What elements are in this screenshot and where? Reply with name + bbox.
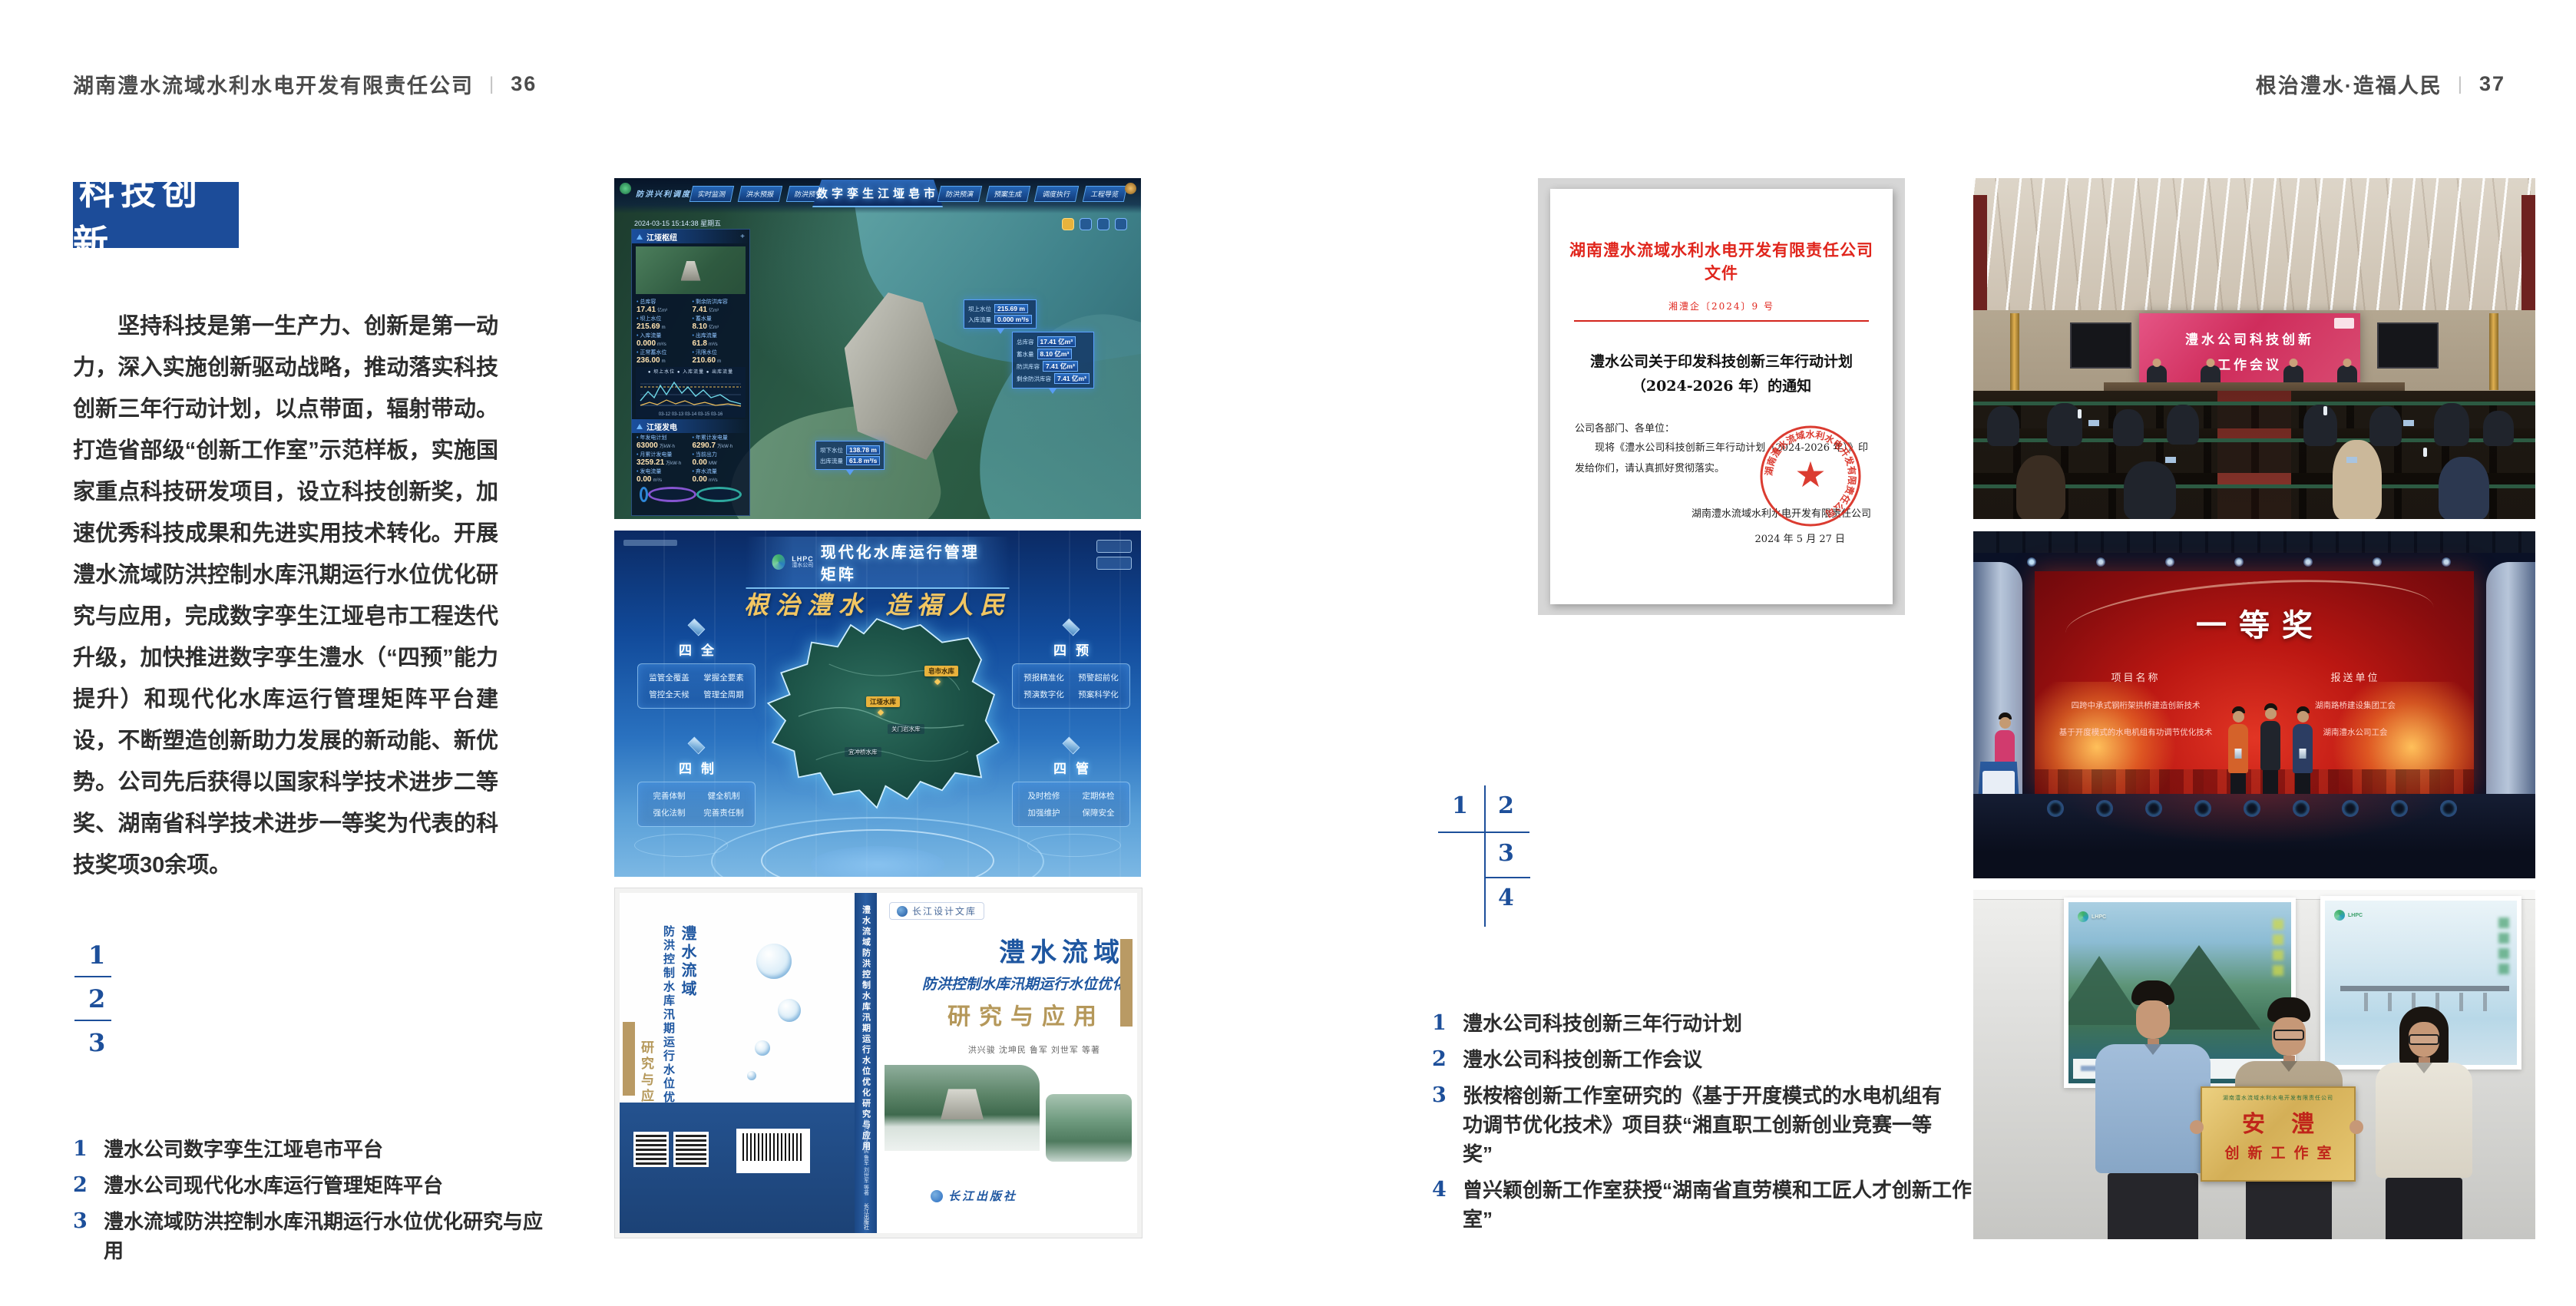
caption-text: 澧水公司科技创新三年行动计划: [1463, 1009, 1742, 1038]
chart-legend: ● 坝上水位 ● 入库流量 ● 出库流量: [637, 368, 744, 375]
document-title: 澧水公司关于印发科技创新三年行动计划 （2024-2026 年）的通知: [1572, 349, 1871, 398]
map-callout-upstream: 坝上水位215.69 m 入库流量0.000 m³/s: [964, 299, 1037, 329]
caption-text: 澧水流域防洪控制水库汛期运行水位优化研究与应用: [104, 1207, 549, 1265]
red-rule: [1574, 320, 1869, 322]
book-spine: 澧水流域防洪控制水库汛期运行水位优化研究与应用 洪兴骏 沈坤民 鲁军 刘世军 等…: [855, 893, 877, 1233]
trophy: [2235, 749, 2242, 759]
official-seal: 湖南澧水流域水利水电开发有限责任公司 ★: [1756, 422, 1865, 531]
spotlight: [2442, 557, 2451, 567]
corner-items: 预报精准化预警超前化 预演数字化预案科学化: [1012, 663, 1130, 709]
index-divider: [74, 976, 111, 977]
stat-cell: 发电流量0.00m³/s: [637, 468, 689, 484]
left-captions: 1 澧水公司数字孪生江垭皂市平台 2 澧水公司现代化水库运行管理矩阵平台 3 澧…: [73, 1135, 549, 1272]
isbn-barcode: [736, 1129, 810, 1173]
stage-light-fixture: [2047, 800, 2064, 817]
water-bubble: [755, 1040, 770, 1056]
stage-light-fixture: [2342, 800, 2359, 817]
spotlight: [2373, 557, 2382, 567]
gold-pillar: [2489, 313, 2498, 390]
stat-cell: 当前出力0.00MW: [693, 451, 746, 467]
award-project: 四跨中承式钢桁架拱桥建造创新技术: [2035, 699, 2237, 711]
gold-pillar: [2010, 313, 2019, 390]
basin-terrain-map: [746, 609, 1007, 824]
spine-title: 澧水流域防洪控制水库汛期运行水位优化研究与应用: [860, 905, 872, 1113]
series-badge: 长江设计文库: [889, 902, 984, 920]
hand: [2349, 1120, 2363, 1134]
caption-number: 1: [1432, 1009, 1450, 1038]
caption-number: 2: [73, 1171, 91, 1200]
emblem-icon: [1125, 183, 1136, 194]
attendee: [2439, 457, 2489, 519]
layers-icon: [1080, 218, 1092, 230]
publisher-name: 长江出版社: [948, 1188, 1017, 1204]
city-silhouette: [2035, 769, 2474, 794]
dam-photo-large: [885, 1065, 1040, 1151]
document-date: 2024 年 5 月 27 日: [1598, 531, 1845, 545]
logo-abbr: LHPC: [792, 556, 814, 563]
person-right: [2366, 1007, 2482, 1239]
shield-icon: [1063, 737, 1080, 755]
tab-flood-forecast: 洪水预报: [738, 186, 782, 202]
settings-icon: [1115, 218, 1127, 230]
stat-cell: 正常蓄水位236.00m: [637, 349, 689, 365]
stage-light-fixture: [2440, 800, 2457, 817]
datetime-placeholder: [623, 540, 677, 546]
tan-accent-bar: [623, 1022, 635, 1096]
platform-logo-icon: [620, 183, 631, 194]
caption-number: 3: [73, 1207, 91, 1265]
panel-button: [1096, 540, 1132, 553]
panel-title: 江垭发电: [646, 421, 677, 432]
screen-logo: [2334, 318, 2354, 329]
ripple-side: [1027, 834, 1121, 857]
attendee: [2167, 405, 2199, 445]
figure-index-2: 2: [73, 985, 119, 1013]
figure-official-document: 湖南澧水流域水利水电开发有限责任公司文件 湘澧企〔2024〕9 号 澧水公司关于…: [1538, 178, 1905, 615]
spotlight: [2027, 557, 2036, 567]
meeting-screen: 澧水公司科技创新 工作会议: [2139, 313, 2360, 388]
spotlight: [2165, 557, 2174, 567]
alert-icon: [1062, 218, 1074, 230]
corner-panel-siguan: 四管 及时检修定期体检 加强维护保障安全: [1012, 738, 1130, 827]
award-title: 一等奖: [2035, 600, 2474, 645]
callout-pointer: [846, 470, 854, 475]
dam-photo-small: [1046, 1094, 1132, 1162]
stat-cell: 年发电计划63000万kW·h: [637, 434, 689, 450]
figure-index-1: 1: [73, 941, 119, 969]
photo-innovation-meeting: 澧水公司科技创新 工作会议: [1973, 178, 2535, 519]
person-left: [2087, 980, 2219, 1239]
corner-items: 及时检修定期体检 加强维护保障安全: [1012, 782, 1130, 827]
attendee: [2483, 411, 2514, 446]
dam-thumbnail-shape: [681, 261, 701, 281]
award-project: 基于开度模式的水电机组有功调节优化技术: [2035, 726, 2237, 738]
map-callout-downstream: 坝下水位138.78 m 出库流量61.8 m³/s: [815, 441, 885, 470]
stage-light-fixture: [2096, 800, 2113, 817]
stat-cell: 汛限水位210.60m: [693, 349, 746, 365]
figure-index-2: 2: [1498, 792, 1514, 819]
photo-award-ceremony: 一等奖 项目名称 四跨中承式钢桁架拱桥建造创新技术 基于开度模式的水电机组有功调…: [1973, 531, 2535, 878]
header-separator: |: [489, 74, 495, 95]
water-bottle: [2423, 448, 2427, 457]
caption-number: 3: [1432, 1081, 1450, 1169]
seal-star-icon: ★: [1794, 454, 1826, 495]
laptop: [2165, 457, 2176, 463]
caption-text: 澧水公司现代化水库运行管理矩阵平台: [104, 1171, 443, 1200]
right-captions: 1 澧水公司科技创新三年行动计划 2 澧水公司科技创新工作会议 3 张桉榕创新工…: [1432, 1009, 1973, 1241]
side-screen: [2377, 322, 2439, 369]
toolbar-icon-cluster: [1062, 218, 1127, 230]
caption-row: 2 澧水公司现代化水库运行管理矩阵平台: [73, 1171, 549, 1200]
book-title-1: 澧水流域: [999, 931, 1125, 969]
gauge-icon: [640, 487, 648, 502]
water-bubble: [756, 944, 792, 979]
back-blue-band: [620, 1103, 855, 1233]
stat-cell: 蓄水量8.10亿m³: [693, 315, 746, 331]
attendee: [2047, 403, 2082, 446]
caption-number: 2: [1432, 1045, 1450, 1074]
chart-x-ticks: 03-12 03-13 03-14 03-15 03-16: [637, 412, 744, 417]
laptop: [2346, 457, 2357, 463]
screen-title-line1: 澧水公司科技创新: [2139, 329, 2360, 348]
book-front-cover: 长江设计文库 澧水流域 防洪控制水库汛期运行水位优化 研究与应用 洪兴骏 沈坤民…: [877, 893, 1137, 1233]
slogan: 根治澧水·造福人民: [2256, 69, 2442, 99]
anchor-icon: [637, 234, 643, 240]
spotlight: [2096, 557, 2105, 567]
bridge-shape: [2340, 986, 2509, 991]
anchor-icon: [637, 424, 643, 429]
page-number-right: 37: [2479, 72, 2505, 96]
lhpc-logo-text: LHPC: [2348, 913, 2363, 918]
publisher-mark: 长江出版社: [931, 1188, 1017, 1204]
attendee: [2369, 406, 2402, 446]
glasses: [2409, 1034, 2439, 1045]
stat-cell: 年累计发电量6290.7万kW·h: [693, 434, 746, 450]
stage-light-fixture: [2293, 800, 2310, 817]
corner-items: 监管全覆盖掌握全要素 管控全天候管理全周期: [637, 663, 756, 709]
spine-authors: 洪兴骏 沈坤民 鲁军 刘世军 等著: [862, 1119, 870, 1196]
attendee: [2434, 403, 2469, 446]
hand: [2190, 1120, 2204, 1134]
led-screen: 一等奖 项目名称 四跨中承式钢桁架拱桥建造创新技术 基于开度模式的水电机组有功调…: [2035, 571, 2474, 794]
lhpc-logo-icon: [2078, 911, 2088, 922]
innovation-studio-plaque: 湖南澧水流域水利水电开发有限责任公司 安澧 创新工作室: [2201, 1086, 2356, 1182]
map-label-guanmenyan: 关门岩水库: [888, 724, 924, 734]
left-tab-group: 实时监测 洪水预报 防洪预警: [691, 186, 829, 202]
column-header: 报送单位: [2237, 670, 2474, 684]
screen-title-line2: 工作会议: [2139, 354, 2360, 373]
tab-dispatch-execution: 调度执行: [1034, 186, 1079, 202]
caption-row: 1 澧水公司科技创新三年行动计划: [1432, 1009, 1973, 1038]
spotlight: [2234, 557, 2244, 567]
map-label-jiangya: 江垭水库: [866, 696, 900, 707]
calligraphy-strokes: [2273, 919, 2283, 976]
column-header: 项目名称: [2035, 670, 2237, 684]
company-logo-icon: [772, 554, 785, 570]
laptop: [2403, 420, 2414, 426]
gauge-icon: [648, 487, 696, 502]
attendee: [2016, 455, 2065, 519]
caption-row: 2 澧水公司科技创新工作会议: [1432, 1045, 1973, 1074]
company-name: 湖南澧水流域水利水电开发有限责任公司: [73, 69, 474, 99]
attendee: [2303, 405, 2337, 446]
tab-project-tour: 工程导览: [1083, 186, 1127, 202]
figure-index-4: 4: [1498, 884, 1514, 911]
lhpc-logo-text: LHPC: [2092, 914, 2106, 920]
photo-studio-plaque-group: LHPC LHPC 湖南澧水流域水利水电开发有限责任公司 安澧 创新工作室: [1973, 890, 2535, 1239]
grid-horizontal-line: [1484, 877, 1530, 878]
caption-row: 1 澧水公司数字孪生江垭皂市平台: [73, 1135, 549, 1164]
generation-stats-grid: 年发电计划63000万kW·h 年累计发电量6290.7万kW·h 月累计发电量…: [632, 433, 749, 484]
platform-title: 数字孪生江垭皂市: [816, 185, 939, 201]
caption-text: 澧水公司数字孪生江垭皂市平台: [104, 1135, 383, 1164]
document-red-header: 湖南澧水流域水利水电开发有限责任公司文件: [1564, 238, 1879, 284]
cube-icon: [1063, 619, 1080, 636]
stage-light-fixture: [2145, 800, 2162, 817]
corner-title: 四预: [1012, 640, 1130, 659]
corner-title: 四全: [637, 640, 756, 659]
plaque-subtitle: 创新工作室: [2202, 1142, 2354, 1162]
side-screen: [2070, 322, 2131, 369]
unit-gauges: [632, 484, 749, 502]
caption-text: 澧水公司科技创新工作会议: [1463, 1045, 1702, 1074]
stat-cell: 入库流量0.000m³/s: [637, 332, 689, 348]
reservoir-stats-grid: 总库容17.41亿m³ 剩余防洪库容7.41亿m³ 坝上水位215.69m 蓄水…: [632, 297, 749, 365]
publisher-logo-icon: [931, 1190, 943, 1202]
figure-index-3: 3: [73, 1029, 119, 1056]
gauge-icon: [696, 487, 742, 502]
left-data-panel: 江垭枢纽 + 总库容17.41亿m³ 剩余防洪库容7.41亿m³ 坝上水位215…: [631, 229, 750, 516]
laptop: [2088, 420, 2099, 426]
page-header-right: 根治澧水·造福人民 | 37: [2256, 69, 2505, 99]
page-header-left: 湖南澧水流域水利水电开发有限责任公司 | 36: [73, 69, 537, 99]
module-label: 防洪兴利调度: [636, 187, 691, 199]
qr-code: [673, 1132, 709, 1167]
caption-row: 4 曾兴颖创新工作室获授“湖南省直劳模和工匠人才创新工作室”: [1432, 1175, 1973, 1234]
stage-light-fixture: [2244, 800, 2260, 817]
plaque-company-line: 湖南澧水流域水利水电开发有限责任公司: [2202, 1094, 2354, 1102]
expand-icon: +: [740, 233, 745, 241]
tab-flood-rehearsal: 防洪预演: [937, 186, 982, 202]
datetime-display: 2024-03-15 15:14:38 星期五: [634, 218, 721, 228]
water-bottle: [2078, 409, 2082, 418]
figure-index-3: 3: [1498, 840, 1514, 867]
matrix-header: LHPC 澧水公司 现代化水库运行管理矩阵: [746, 537, 1010, 589]
tab-plan-generation: 预案生成: [986, 186, 1030, 202]
chart-plot: [637, 375, 744, 408]
ceiling-lights: [1973, 178, 2535, 310]
water-level-chart: ● 坝上水位 ● 入库流量 ● 出库流量 03-12 03-13 03-14 0…: [636, 367, 746, 418]
stage-light-fixture: [2391, 800, 2408, 817]
award-columns: 项目名称 四跨中承式钢桁架拱桥建造创新技术 基于开度模式的水电机组有功调节优化技…: [2035, 670, 2474, 738]
map-callout-capacity: 总库容17.41 亿m³ 蓄水量8.10 亿m³ 防洪库容7.41 亿m³ 剩余…: [1012, 332, 1094, 388]
stat-cell: 弃水流量0.00m³/s: [693, 468, 746, 484]
caption-row: 3 澧水流域防洪控制水库汛期运行水位优化研究与应用: [73, 1207, 549, 1265]
caption-text: 张桉榕创新工作室研究的《基于开度模式的水电机组有功调节优化技术》项目获“湘直职工…: [1463, 1081, 1954, 1169]
map-label-zaoshi: 皂市水库: [924, 666, 958, 676]
plaque-title: 安澧: [2202, 1105, 2354, 1139]
stage-light-fixture: [2194, 800, 2211, 817]
series-logo-icon: [897, 906, 908, 917]
panel-title: 江垭枢纽: [646, 231, 677, 243]
callout-pointer: [1049, 388, 1057, 394]
stat-cell: 月累计发电量3259.21万kW·h: [637, 451, 689, 467]
book-authors: 洪兴骏 沈坤民 鲁军 刘世军 等著: [968, 1043, 1100, 1056]
calligraphy-strokes: [2498, 918, 2509, 974]
caption-text: 曾兴颖创新工作室获授“湖南省直劳模和工匠人才创新工作室”: [1463, 1175, 1973, 1234]
audience-area: [1973, 391, 2535, 519]
attendee-beige-coat: [2333, 440, 2382, 519]
attendee: [1987, 406, 2019, 446]
panel-header: 江垭发电: [632, 419, 749, 433]
platform-title-plate: 数字孪生江垭皂市: [812, 180, 943, 207]
book-title-2: 防洪控制水库汛期运行水位优化: [922, 973, 1126, 994]
water-bubble: [747, 1071, 756, 1080]
header-separator: |: [2458, 74, 2464, 95]
panel-header: 江垭枢纽 +: [632, 230, 749, 243]
stat-cell: 出库流量61.8m³/s: [693, 332, 746, 348]
tab-realtime-monitor: 实时监测: [689, 186, 734, 202]
spine-publisher: 长江出版社: [862, 1203, 870, 1230]
stat-cell: 坝上水位215.69m: [637, 315, 689, 331]
water-bubble: [778, 999, 801, 1022]
attendee: [2113, 409, 2144, 446]
document-number: 湘澧企〔2024〕9 号: [1550, 299, 1893, 312]
right-tab-group: 防洪预演 预案生成 调度执行 工程导览: [939, 186, 1126, 202]
trophy: [2300, 749, 2306, 759]
cube-icon: [688, 619, 706, 636]
book-back-cover: 澧水流域 防洪控制水库汛期运行水位优化 研究与应用: [620, 893, 855, 1233]
grid-vertical-line: [1484, 785, 1486, 927]
caption-number: 4: [1432, 1175, 1450, 1234]
lhpc-logo: LHPC: [2334, 910, 2363, 921]
attendee: [2124, 461, 2176, 519]
lhpc-logo: LHPC: [2078, 911, 2106, 922]
book-title-3: 研究与应用: [947, 997, 1105, 1031]
ripple-core: [811, 846, 945, 877]
corner-title: 四管: [1012, 758, 1130, 777]
dam-video-thumbnail: [636, 246, 746, 294]
caption-number: 1: [73, 1135, 91, 1164]
figure-book-cover: 澧水流域 防洪控制水库汛期运行水位优化 研究与应用 澧水流域防洪控制水库汛期运行…: [614, 888, 1143, 1238]
caption-row: 3 张桉榕创新工作室研究的《基于开度模式的水电机组有功调节优化技术》项目获“湘直…: [1432, 1081, 1973, 1169]
glasses: [2273, 1030, 2304, 1040]
locate-icon: [1097, 218, 1109, 230]
logo-name: 澧水公司: [792, 563, 814, 568]
spotlight: [2303, 557, 2313, 567]
stat-cell: 总库容17.41亿m³: [637, 298, 689, 314]
qr-code: [633, 1132, 669, 1167]
series-name: 长江设计文库: [912, 904, 977, 918]
figure-matrix-platform: LHPC 澧水公司 现代化水库运行管理矩阵 根治澧水 造福人民 皂市水库 江垭水…: [614, 531, 1141, 877]
lhpc-logo-icon: [2334, 910, 2345, 921]
building-icon: [688, 737, 706, 755]
stat-cell: 剩余防洪库容7.41亿m³: [693, 298, 746, 314]
grid-horizontal-line: [1438, 832, 1529, 833]
stage-truss: [1973, 531, 2535, 553]
map-label-yichongqiao: 宜冲桥水库: [845, 747, 881, 757]
corner-title: 四制: [637, 758, 756, 777]
ripple-side: [634, 834, 728, 857]
corner-panel-sizhi: 四制 完善体制健全机制 强化法制完善责任制: [637, 738, 756, 827]
matrix-title: 现代化水库运行管理矩阵: [821, 540, 984, 584]
section-title-badge: 科技创新: [73, 182, 239, 248]
index-divider: [74, 1020, 111, 1021]
figure-index-1: 1: [1452, 792, 1468, 819]
corner-panel-siyu: 四预 预报精准化预警超前化 预演数字化预案科学化: [1012, 620, 1130, 709]
water-bottle: [2323, 406, 2327, 415]
platform-top-bar: 防洪兴利调度 实时监测 洪水预报 防洪预警 数字孪生江垭皂市 防洪预演 预案生成…: [614, 178, 1141, 213]
figure-digital-twin-platform: 防洪兴利调度 实时监测 洪水预报 防洪预警 数字孪生江垭皂市 防洪预演 预案生成…: [614, 178, 1141, 519]
corner-items: 完善体制健全机制 强化法制完善责任制: [637, 782, 756, 827]
body-paragraph: 坚持科技是第一生产力、创新是第一动力，深入实施创新驱动战略，推动落实科技创新三年…: [73, 306, 498, 886]
panel-button: [1096, 557, 1132, 570]
callout-pointer: [997, 329, 1004, 334]
corner-panel-siquan: 四全 监管全覆盖掌握全要素 管控全天候管理全周期: [637, 620, 756, 709]
company-logo-text: LHPC 澧水公司: [792, 556, 814, 568]
figure-index-list: 1 2 3: [73, 941, 119, 1056]
document-page: 湖南澧水流域水利水电开发有限责任公司文件 湘澧企〔2024〕9 号 澧水公司关于…: [1550, 189, 1893, 604]
page-number-left: 36: [511, 72, 537, 96]
tan-accent-bar: [1120, 939, 1133, 1027]
